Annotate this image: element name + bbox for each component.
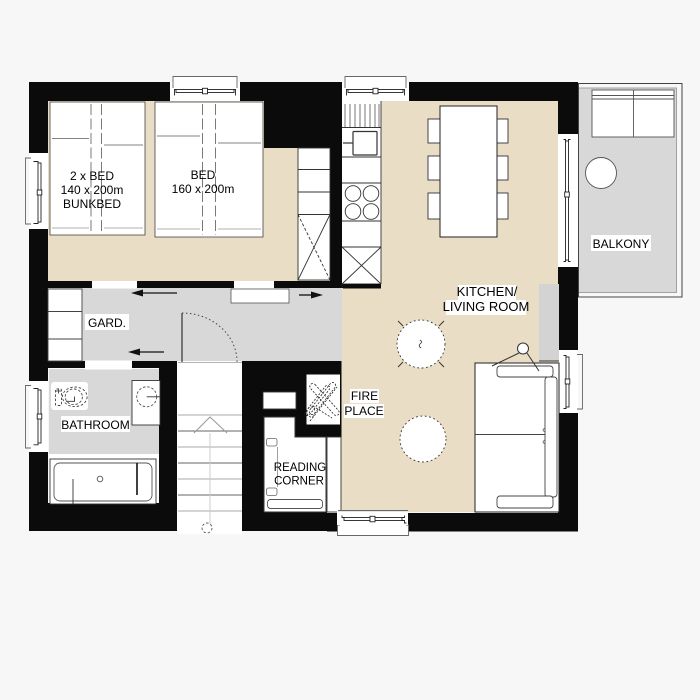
svg-text:FIRE: FIRE	[351, 389, 378, 403]
svg-text:2 x BED: 2 x BED	[70, 169, 114, 183]
svg-text:BATHROOM: BATHROOM	[61, 418, 129, 432]
svg-text:140 x 200m: 140 x 200m	[61, 183, 124, 197]
svg-text:BED: BED	[191, 168, 216, 182]
svg-text:KITCHEN/: KITCHEN/	[457, 284, 518, 299]
svg-text:PLACE: PLACE	[344, 404, 383, 418]
svg-text:READING: READING	[274, 462, 326, 474]
svg-text:CORNER: CORNER	[274, 476, 324, 488]
svg-text:LIVING ROOM: LIVING ROOM	[443, 299, 530, 314]
svg-text:BUNKBED: BUNKBED	[63, 197, 121, 211]
svg-text:BALKONY: BALKONY	[593, 237, 650, 251]
svg-text:GARD.: GARD.	[88, 316, 126, 330]
svg-text:160 x 200m: 160 x 200m	[172, 182, 235, 196]
